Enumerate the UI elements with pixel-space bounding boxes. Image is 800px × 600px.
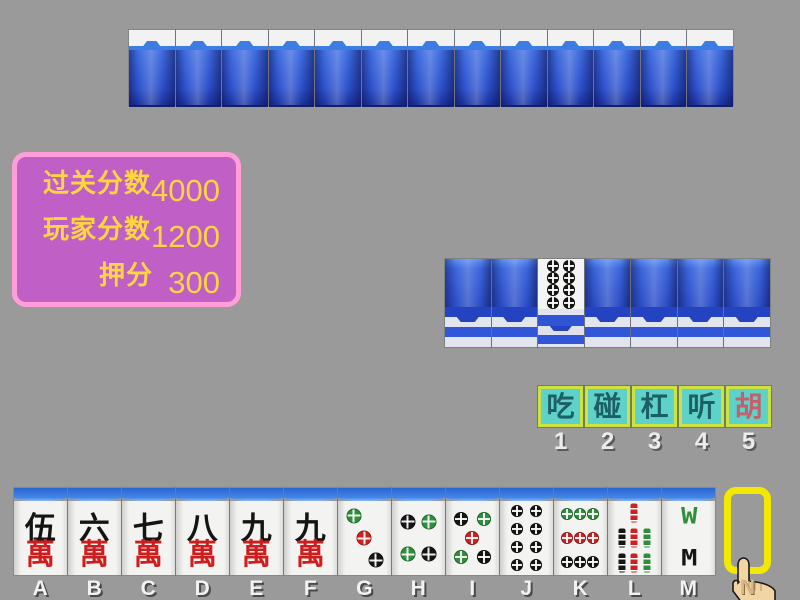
hand-tile-b[interactable]: 六萬B	[68, 488, 121, 575]
key-hint-3: 3	[632, 428, 677, 456]
tile-back-edge	[662, 488, 715, 501]
meld-tile-face-up	[538, 259, 584, 347]
tile-top-notch	[143, 41, 160, 46]
key-label-l: L	[608, 577, 661, 600]
bamboo-stick	[618, 554, 625, 573]
circle-dot	[547, 297, 559, 309]
circle-dot	[511, 541, 523, 553]
circle-dot	[530, 523, 542, 535]
key-label-e: E	[230, 577, 283, 600]
key-label-h: H	[392, 577, 445, 600]
opponent-tile-back	[129, 30, 175, 105]
bamboo-stick	[631, 529, 638, 548]
meld-tile-back	[724, 259, 770, 347]
wan-character: 萬	[284, 531, 337, 573]
circle-dot	[547, 284, 559, 296]
opponent-tile-back	[687, 30, 733, 105]
opponent-hand-row	[129, 30, 733, 105]
tile-top-notch	[376, 41, 393, 46]
key-label-c: C	[122, 577, 175, 600]
circle-dot	[346, 508, 361, 523]
key-label-d: D	[176, 577, 229, 600]
tile-back-edge	[500, 488, 553, 501]
opponent-tile-back	[594, 30, 640, 105]
tile-face	[608, 501, 661, 575]
bamboo-stick	[643, 554, 650, 573]
score-row: 玩家分数1200	[21, 213, 232, 259]
circle-dot	[563, 272, 575, 284]
mahjong-game-screen: 过关分数4000玩家分数1200押分300 N 吃1碰2杠3听4胡5伍萬A六萬B…	[0, 0, 800, 600]
tile-top-notch	[701, 41, 718, 46]
tile-back-edge	[14, 488, 67, 501]
meld-tile-back	[585, 259, 631, 347]
score-panel: 过关分数4000玩家分数1200押分300	[12, 152, 241, 307]
circle-dot	[530, 541, 542, 553]
hand-tile-m[interactable]: WMM	[662, 488, 715, 575]
hand-tile-e[interactable]: 九萬E	[230, 488, 283, 575]
tile-top-notch	[190, 41, 207, 46]
tile-back-edge	[446, 488, 499, 501]
hand-tile-j[interactable]: J	[500, 488, 553, 575]
score-label: 玩家分数	[21, 213, 151, 245]
circle-dot	[454, 512, 468, 526]
circle-dot	[400, 547, 415, 562]
tile-back-edge	[68, 488, 121, 501]
circle-dot	[547, 272, 559, 284]
action-button-hu[interactable]: 胡	[726, 386, 771, 427]
tile-top-notch	[236, 41, 253, 46]
tile-face: 伍萬	[14, 501, 67, 575]
score-value: 300	[153, 268, 232, 298]
hand-tile-h[interactable]: H	[392, 488, 445, 575]
opponent-tile-back	[269, 30, 315, 105]
opponent-tile-back	[501, 30, 547, 105]
tile-top-notch	[608, 41, 625, 46]
meld-tile-face	[538, 259, 584, 309]
circle-dot	[587, 532, 599, 544]
key-hint-1: 1	[538, 428, 583, 456]
meld-tile-back	[445, 259, 491, 347]
tile-face	[554, 501, 607, 575]
circle-dot	[511, 523, 523, 535]
circle-dot	[561, 532, 573, 544]
opponent-tile-back	[222, 30, 268, 105]
key-label-k: K	[554, 577, 607, 600]
tile-back-edge	[230, 488, 283, 501]
bamboo-stick	[618, 529, 625, 548]
opponent-tile-back	[315, 30, 361, 105]
tile-top-notch	[469, 41, 486, 46]
tile-top-notch	[283, 41, 300, 46]
opponent-tile-back	[362, 30, 408, 105]
circle-dot	[574, 556, 586, 568]
tile-face: 八萬	[176, 501, 229, 575]
action-button-gang[interactable]: 杠	[632, 386, 677, 427]
tile-top-notch	[329, 41, 346, 46]
circle-dot	[561, 508, 573, 520]
meld-tile-back	[678, 259, 724, 347]
bird-body-glyph: M	[662, 546, 715, 571]
hand-tile-f[interactable]: 九萬F	[284, 488, 337, 575]
circle-dot	[400, 514, 415, 529]
wan-character: 萬	[122, 531, 175, 573]
score-label: 押分	[21, 259, 153, 291]
circle-dot	[511, 559, 523, 571]
score-value: 1200	[151, 222, 232, 252]
circle-dot	[465, 531, 479, 545]
hand-tile-g[interactable]: G	[338, 488, 391, 575]
tile-back-edge	[122, 488, 175, 501]
tile-back-edge	[392, 488, 445, 501]
opponent-tile-back	[176, 30, 222, 105]
hand-tile-c[interactable]: 七萬C	[122, 488, 175, 575]
key-label-slot: N	[724, 576, 771, 600]
circle-dot	[357, 531, 372, 546]
key-hint-2: 2	[585, 428, 630, 456]
circle-dot	[530, 559, 542, 571]
action-button-peng[interactable]: 碰	[585, 386, 630, 427]
bird-wings-glyph: W	[662, 504, 715, 529]
opponent-tile-back	[548, 30, 594, 105]
hand-tile-l[interactable]: L	[608, 488, 661, 575]
tile-face: WM	[662, 501, 715, 575]
circle-dot	[477, 512, 491, 526]
circle-dot	[547, 260, 559, 272]
tile-top-notch	[655, 41, 672, 46]
key-hint-5: 5	[726, 428, 771, 456]
tile-face	[392, 501, 445, 575]
tile-top-notch	[562, 41, 579, 46]
circle-dot	[561, 556, 573, 568]
bamboo-stick	[631, 554, 638, 573]
tile-back-edge	[554, 488, 607, 501]
circle-dot	[421, 514, 436, 529]
circle-dot	[574, 532, 586, 544]
circle-dot	[511, 505, 523, 517]
tile-face: 九萬	[284, 501, 337, 575]
key-label-i: I	[446, 577, 499, 600]
action-button-ting[interactable]: 听	[679, 386, 724, 427]
wan-character: 萬	[230, 531, 283, 573]
circle-dot	[563, 297, 575, 309]
tile-face: 六萬	[68, 501, 121, 575]
circle-dot	[530, 505, 542, 517]
circle-dot	[563, 284, 575, 296]
bamboo-stick	[631, 503, 638, 522]
circle-dot	[368, 553, 383, 568]
circle-dot	[477, 550, 491, 564]
wan-character: 萬	[176, 531, 229, 573]
circle-dot	[421, 547, 436, 562]
score-row: 押分300	[21, 259, 232, 305]
bamboo-stick	[643, 529, 650, 548]
hand-tile-d[interactable]: 八萬D	[176, 488, 229, 575]
hand-tile-k[interactable]: K	[554, 488, 607, 575]
tile-face	[446, 501, 499, 575]
score-label: 过关分数	[21, 167, 151, 199]
circle-dot	[587, 508, 599, 520]
key-label-a: A	[14, 577, 67, 600]
opponent-tile-back	[641, 30, 687, 105]
score-value: 4000	[151, 176, 232, 206]
circle-dot	[574, 508, 586, 520]
action-button-chi[interactable]: 吃	[538, 386, 583, 427]
tile-back-edge	[338, 488, 391, 501]
tile-face: 七萬	[122, 501, 175, 575]
opponent-tile-back	[408, 30, 454, 105]
tile-top-notch	[422, 41, 439, 46]
meld-tile-back	[631, 259, 677, 347]
key-label-m: M	[662, 577, 715, 600]
tile-face	[338, 501, 391, 575]
hand-tile-i[interactable]: I	[446, 488, 499, 575]
key-label-b: B	[68, 577, 121, 600]
tile-face: 九萬	[230, 501, 283, 575]
tile-back-edge	[284, 488, 337, 501]
tile-top-notch	[515, 41, 532, 46]
key-label-f: F	[284, 577, 337, 600]
tile-face	[500, 501, 553, 575]
wan-character: 萬	[14, 531, 67, 573]
wall-meld-row	[445, 259, 770, 347]
opponent-tile-back	[455, 30, 501, 105]
score-row: 过关分数4000	[21, 167, 232, 213]
circle-dot	[587, 556, 599, 568]
tile-back-edge	[176, 488, 229, 501]
circle-dot	[454, 550, 468, 564]
hand-tile-a[interactable]: 伍萬A	[14, 488, 67, 575]
wan-character: 萬	[68, 531, 121, 573]
key-label-g: G	[338, 577, 391, 600]
key-label-j: J	[500, 577, 553, 600]
circle-dot	[563, 260, 575, 272]
meld-tile-back	[492, 259, 538, 347]
key-hint-4: 4	[679, 428, 724, 456]
tile-back-edge	[608, 488, 661, 501]
